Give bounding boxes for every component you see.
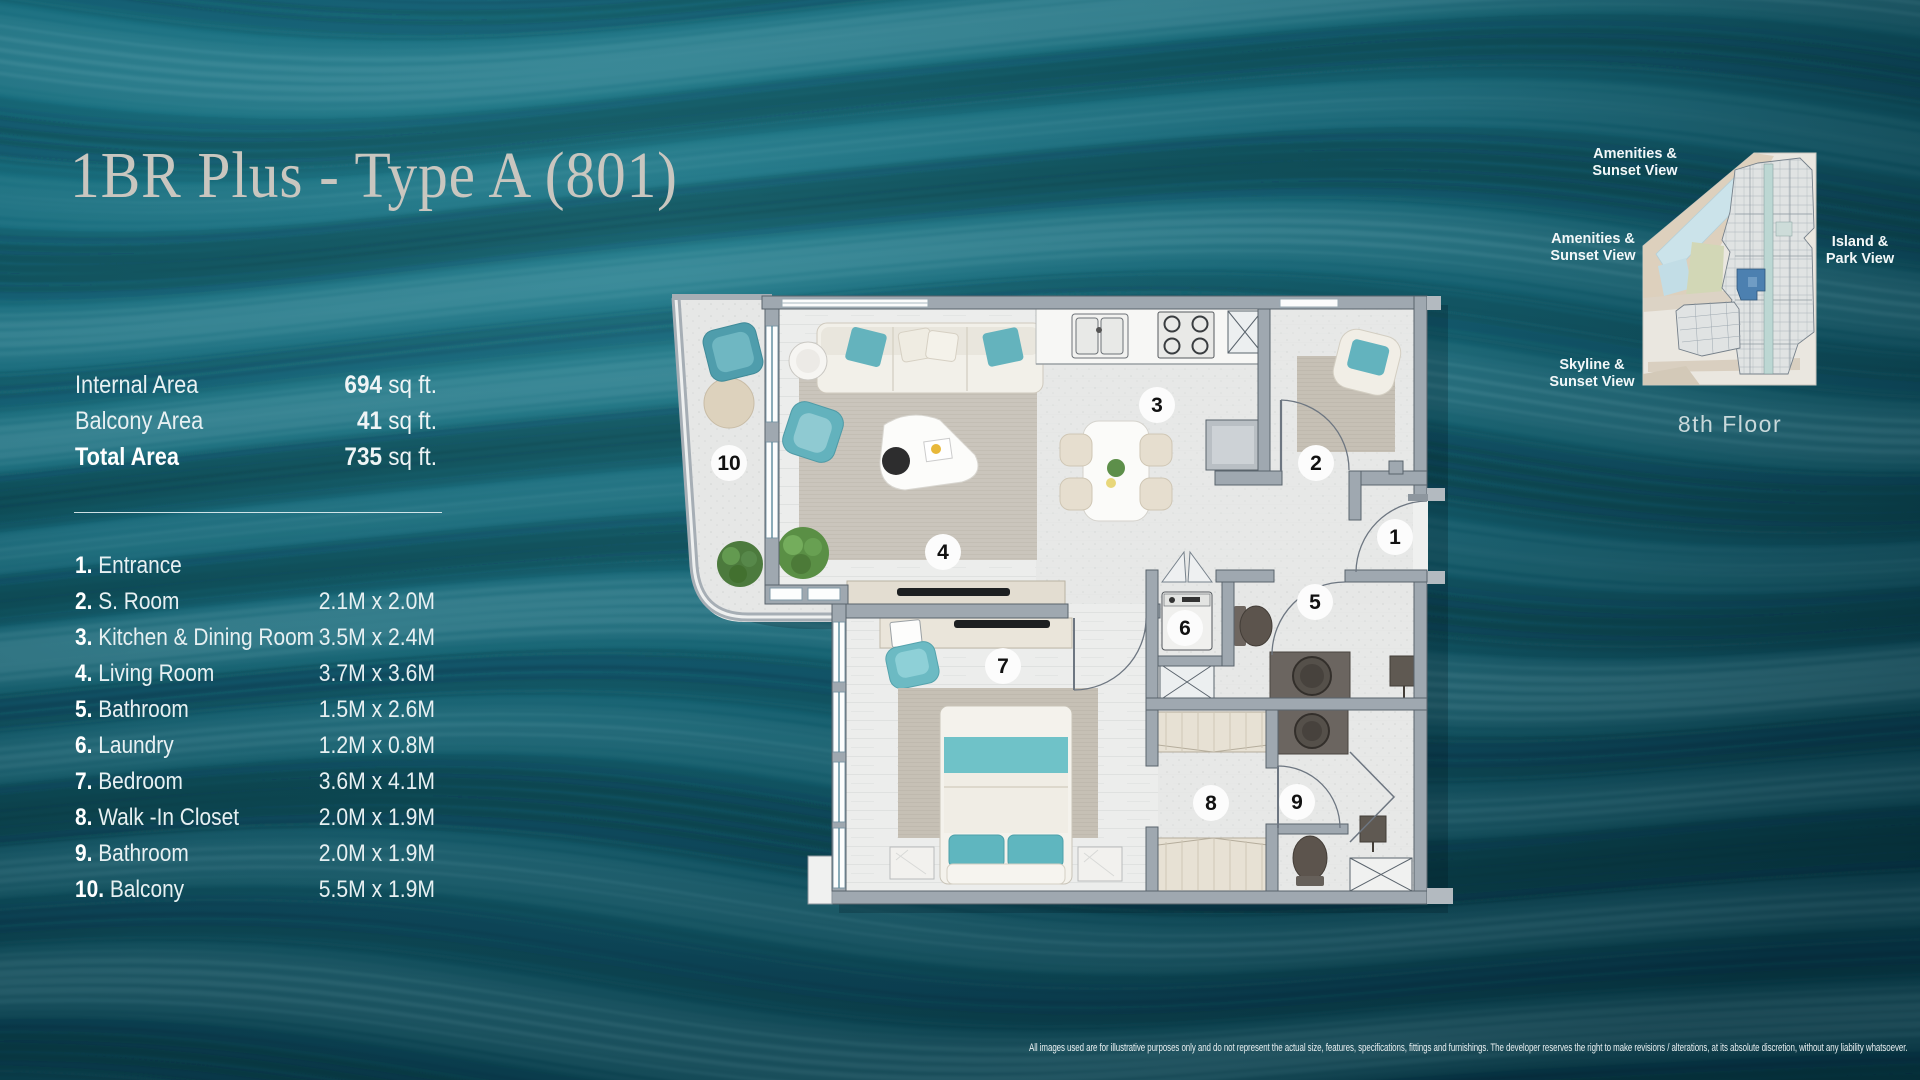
svg-text:8: 8 <box>1205 792 1217 815</box>
svg-text:6: 6 <box>1179 617 1191 640</box>
svg-text:10: 10 <box>717 452 740 475</box>
svg-text:9: 9 <box>1291 791 1303 814</box>
svg-text:5: 5 <box>1309 591 1321 614</box>
svg-text:1: 1 <box>1389 526 1401 549</box>
svg-text:7: 7 <box>997 655 1009 678</box>
svg-text:4: 4 <box>937 541 949 564</box>
svg-text:2: 2 <box>1310 452 1322 475</box>
svg-text:3: 3 <box>1151 394 1163 417</box>
